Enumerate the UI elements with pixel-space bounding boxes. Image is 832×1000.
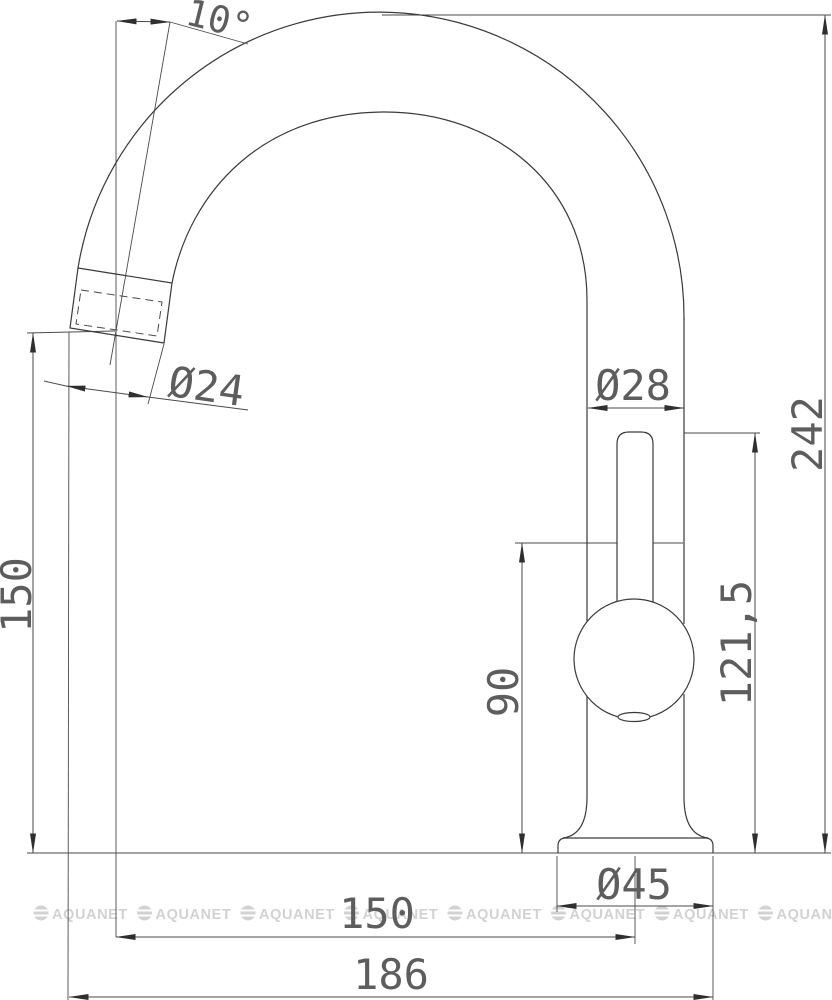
ball-bottom-detent [618,713,650,722]
watermark-row: AQUANET AQUANET AQUANET AQUANET AQUANET [33,906,832,924]
watermark: AQUANET [240,906,335,924]
dim-cartridge-height-label: 90 [479,667,528,718]
dim-overall-reach-label: 186 [353,950,429,999]
dim-spout-diameter-line [66,386,148,397]
watermark-text: AQUANET [52,907,128,923]
svg-text:AQUANET: AQUANET [570,907,646,923]
dim-overall-height-label: 242 [783,396,832,472]
aquanet-logo-icon [34,906,49,921]
dimension-lines [33,15,825,997]
handle-lever [617,432,653,604]
extension-line-outlet-right [148,344,164,404]
base-flare-left [563,797,587,838]
dim-base-diameter-label: Ø45 [596,860,672,909]
watermark: AQUANET [758,906,832,924]
dim-spout-diameter-overshoot-left [44,381,66,386]
dim-body-diameter-label: Ø28 [595,361,671,410]
faucet-outline [70,12,713,853]
svg-text:AQUANET: AQUANET [259,907,335,923]
spout-inner-arc [172,112,587,300]
dim-angle-line [117,21,170,22]
aquanet-logo-icon [137,906,152,921]
base-plate [558,838,713,853]
svg-text:AQUANET: AQUANET [156,907,232,923]
dim-spout-diameter-label: Ø24 [166,357,248,416]
svg-text:AQUANET: AQUANET [777,907,832,923]
aquanet-logo-icon [551,906,566,921]
watermark: AQUANET [137,906,232,924]
aquanet-logo-icon [448,906,463,921]
spout-outer-arc [78,12,684,320]
faucet-drawing: AQUANET AQUANET AQUANET AQUANET AQUANET [0,0,832,1000]
angled-10deg-line [110,22,170,365]
svg-text:AQUANET: AQUANET [673,907,749,923]
dim-spout-height-label: 150 [0,557,41,633]
watermark: AQUANET [33,906,128,924]
dim-reach-axis-label: 150 [339,889,415,938]
dim-handle-height-label: 121,5 [712,580,761,706]
svg-text:AQUANET: AQUANET [466,907,542,923]
base-flare-right [684,797,708,838]
handle-ball [574,599,694,719]
aquanet-logo-icon [241,906,256,921]
technical-drawing-canvas: AQUANET AQUANET AQUANET AQUANET AQUANET [0,0,832,1000]
extension-line-outlet-left [68,332,69,1000]
watermark: AQUANET [447,906,542,924]
dimension-labels: 10° Ø24 Ø28 242 121,5 90 150 Ø45 150 186 [0,0,832,999]
dim-angle-label: 10° [182,0,257,49]
aquanet-logo-icon [758,906,773,921]
extension-lines [27,15,831,1000]
